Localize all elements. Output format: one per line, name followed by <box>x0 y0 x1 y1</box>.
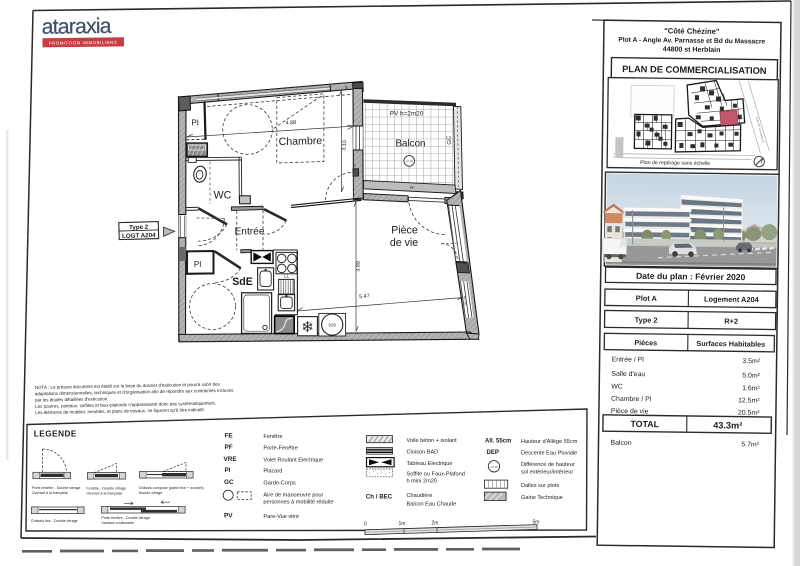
svg-text:Chambre / Pl: Chambre / Pl <box>611 396 652 404</box>
svg-text:Pièce: Pièce <box>391 225 418 237</box>
svg-text:WC: WC <box>611 383 623 390</box>
svg-text:929: 929 <box>329 323 337 328</box>
svg-text:Plot A: Plot A <box>636 294 658 303</box>
svg-text:LEGENDE: LEGENDE <box>34 430 77 439</box>
svg-text:Porte-fenêtre - Double vitrage: Porte-fenêtre - Double vitrage <box>32 486 81 490</box>
svg-text:SdE: SdE <box>232 276 253 288</box>
svg-text:Placard: Placard <box>263 469 282 475</box>
svg-text:Pièce de vie: Pièce de vie <box>611 408 649 415</box>
svg-text:Surfaces Habitables: Surfaces Habitables <box>696 339 765 349</box>
svg-text:PROMOTION IMMOBILIERS: PROMOTION IMMOBILIERS <box>49 40 118 46</box>
svg-text:Châssis fixe - Double vitrage: Châssis fixe - Double vitrage <box>31 519 78 523</box>
svg-text:LL: LL <box>284 273 289 278</box>
svg-text:FE: FE <box>225 432 234 439</box>
svg-text:Fenêtre: Fenêtre <box>263 434 282 440</box>
svg-text:WC: WC <box>214 190 232 202</box>
svg-text:Type 2: Type 2 <box>129 224 149 232</box>
svg-text:All. 55: All. 55 <box>352 163 356 173</box>
svg-text:VRE: VRE <box>224 456 238 463</box>
svg-text:LOGT A204: LOGT A204 <box>122 232 156 240</box>
svg-text:Double vitrage: Double vitrage <box>139 491 163 495</box>
svg-text:Dalles sur plots: Dalles sur plots <box>521 483 559 489</box>
svg-text:Pl: Pl <box>194 260 201 269</box>
svg-text:GC: GC <box>446 135 453 145</box>
svg-text:Voile béton + isolant: Voile béton + isolant <box>407 438 458 444</box>
svg-text:Ouvrant à la française: Ouvrant à la française <box>32 491 68 495</box>
svg-text:Balcon: Balcon <box>610 440 631 447</box>
svg-text:Cloison BAD: Cloison BAD <box>407 450 439 456</box>
svg-text:R+2: R+2 <box>724 317 738 326</box>
svg-text:Porte-Fenêtre: Porte-Fenêtre <box>263 446 298 452</box>
svg-text:Aire de manoeuvre pour: Aire de manoeuvre pour <box>263 492 323 498</box>
svg-text:4.88: 4.88 <box>285 120 296 127</box>
svg-text:de vie: de vie <box>390 237 418 249</box>
svg-text:PF: PF <box>410 186 415 190</box>
svg-text:Garde-Corps: Garde-Corps <box>263 481 296 487</box>
svg-text:GC: GC <box>224 479 234 486</box>
svg-text:TOTAL: TOTAL <box>630 419 659 429</box>
svg-text:Pare-Vue vitré: Pare-Vue vitré <box>263 514 299 520</box>
svg-text:Hauteur d'Allège 55cm: Hauteur d'Allège 55cm <box>521 439 578 445</box>
svg-text:+0.16: +0.16 <box>490 465 498 469</box>
svg-text:❄: ❄ <box>301 319 314 336</box>
svg-text:Chaudière: Chaudière <box>407 493 433 499</box>
svg-text:Ouvrant à la française: Ouvrant à la française <box>86 492 122 496</box>
svg-text:3.5m²: 3.5m² <box>742 358 760 365</box>
svg-text:Balcon: Balcon <box>396 139 426 150</box>
svg-text:43.3m²: 43.3m² <box>713 420 742 430</box>
svg-text:personnes à mobilité réduite: personnes à mobilité réduite <box>263 499 333 505</box>
svg-text:h mini 2m20: h mini 2m20 <box>407 478 437 484</box>
svg-text:0: 0 <box>364 522 367 528</box>
svg-text:Logement A204: Logement A204 <box>704 295 760 305</box>
svg-text:PV: PV <box>224 513 233 520</box>
svg-text:Vantaux coulissants: Vantaux coulissants <box>101 521 134 525</box>
svg-text:PLAN DE COMMERCIALISATION: PLAN DE COMMERCIALISATION <box>622 64 767 76</box>
svg-text:Balcon Eau Chaude: Balcon Eau Chaude <box>407 501 457 507</box>
svg-text:Châssis composé (partie fixe +: Châssis composé (partie fixe + ouvrant) <box>139 486 204 490</box>
svg-text:3.10: 3.10 <box>341 140 348 151</box>
svg-text:PV h=2m20: PV h=2m20 <box>390 111 424 118</box>
svg-text:ataraxia: ataraxia <box>42 14 112 39</box>
svg-text:Différence de hauteur: Différence de hauteur <box>521 462 575 468</box>
svg-text:3.89: 3.89 <box>355 261 362 272</box>
svg-text:Gaine Technique: Gaine Technique <box>521 495 563 501</box>
svg-text:Salle d'eau: Salle d'eau <box>611 371 645 378</box>
svg-text:All. 55cm: All. 55cm <box>485 439 511 445</box>
svg-text:Entrée: Entrée <box>234 227 264 238</box>
svg-text:Pl: Pl <box>225 467 231 474</box>
svg-text:5.47: 5.47 <box>359 293 370 300</box>
svg-text:5.7m²: 5.7m² <box>741 441 759 448</box>
svg-text:Type 2: Type 2 <box>635 315 658 324</box>
svg-text:Entrée / Pl: Entrée / Pl <box>612 356 645 363</box>
svg-text:Soffite ou Faux-Plafond: Soffite ou Faux-Plafond <box>407 471 465 477</box>
svg-text:Fenêtre - Double vitrage: Fenêtre - Double vitrage <box>86 487 126 491</box>
svg-text:Pl: Pl <box>191 118 198 127</box>
svg-text:Ch / BEC: Ch / BEC <box>366 494 393 501</box>
svg-text:44800 st Herblain: 44800 st Herblain <box>663 46 721 54</box>
svg-text:20.5m²: 20.5m² <box>738 410 760 417</box>
svg-text:5.0m²: 5.0m² <box>742 372 760 379</box>
svg-text:Date du plan : Février 2020: Date du plan : Février 2020 <box>636 271 746 282</box>
svg-text:DEP: DEP <box>487 450 499 456</box>
svg-text:PF: PF <box>225 444 233 451</box>
svg-text:1.6m²: 1.6m² <box>742 385 760 392</box>
svg-text:Chambre: Chambre <box>278 135 322 148</box>
svg-text:2m: 2m <box>432 521 439 527</box>
svg-text:Tableau Electrique: Tableau Electrique <box>407 461 453 467</box>
svg-text:"Côté Chézine": "Côté Chézine" <box>664 26 720 36</box>
svg-text:Plan de repérage sans échelle: Plan de repérage sans échelle <box>640 160 710 167</box>
svg-text:Porte fenêtre - Double vitrage: Porte fenêtre - Double vitrage <box>101 516 149 520</box>
svg-text:12.5m²: 12.5m² <box>738 397 760 404</box>
svg-text:1m: 1m <box>399 521 406 527</box>
svg-text:Descente Eau Pluviale: Descente Eau Pluviale <box>521 451 577 457</box>
svg-text:sol extérieur/intérieur: sol extérieur/intérieur <box>521 470 573 476</box>
svg-text:+0.16: +0.16 <box>406 159 414 163</box>
svg-text:Pièces: Pièces <box>634 338 657 347</box>
svg-text:Volet Roulant Electrique: Volet Roulant Electrique <box>263 458 323 464</box>
